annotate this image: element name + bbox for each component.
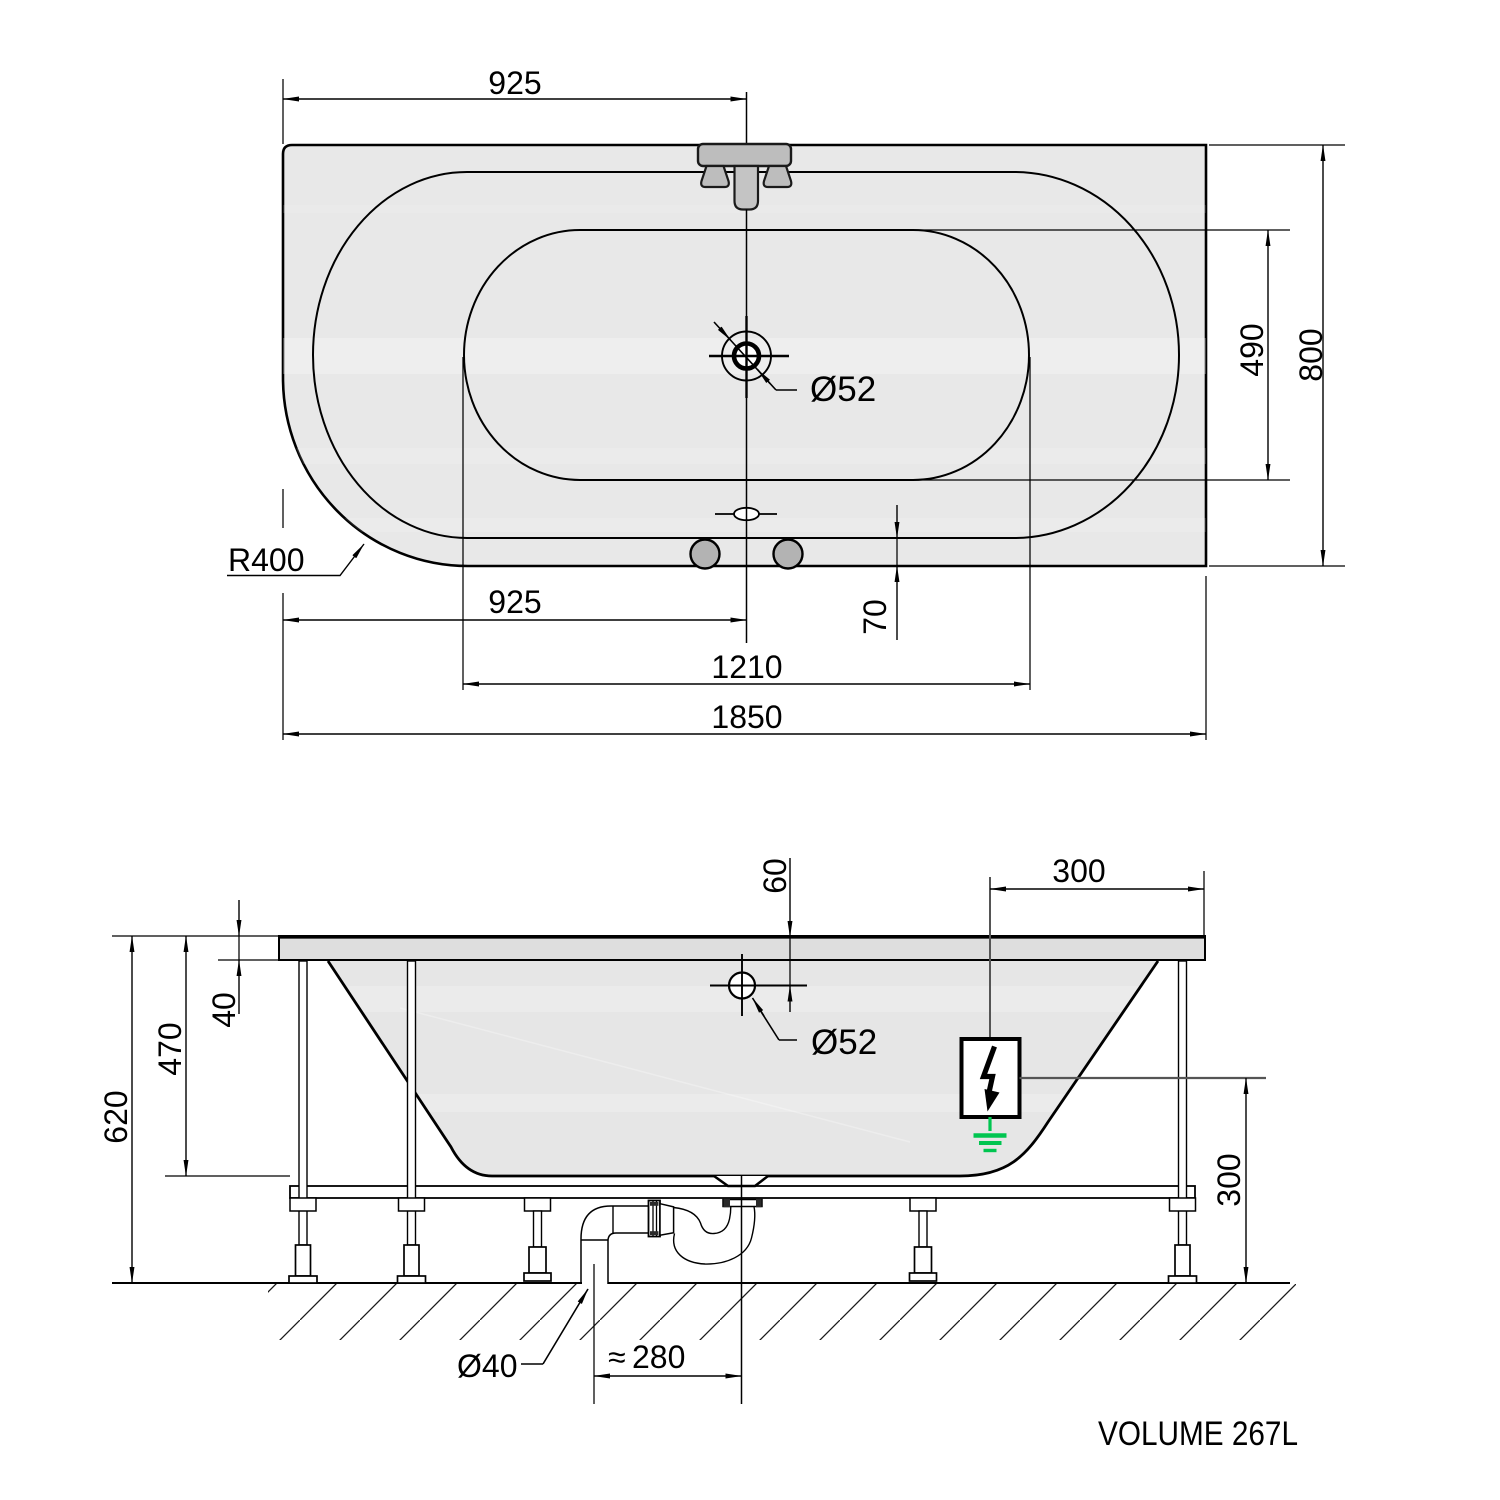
svg-text:1210: 1210 <box>711 649 782 685</box>
svg-text:925: 925 <box>488 584 541 620</box>
svg-text:300: 300 <box>1211 1153 1247 1206</box>
svg-text:60: 60 <box>757 858 793 894</box>
svg-text:VOLUME 267L: VOLUME 267L <box>1098 1415 1298 1453</box>
svg-text:70: 70 <box>857 599 893 635</box>
svg-text:40: 40 <box>206 992 242 1028</box>
svg-text:1850: 1850 <box>711 699 782 735</box>
svg-text:800: 800 <box>1293 328 1329 381</box>
svg-text:Ø52: Ø52 <box>811 1023 877 1062</box>
svg-text:R400: R400 <box>228 542 305 578</box>
svg-text:490: 490 <box>1234 323 1270 376</box>
svg-text:470: 470 <box>152 1022 188 1075</box>
svg-text:Ø52: Ø52 <box>810 370 876 409</box>
svg-text:≈ 280: ≈ 280 <box>608 1339 685 1375</box>
svg-text:620: 620 <box>98 1090 134 1143</box>
svg-text:925: 925 <box>488 65 541 101</box>
svg-text:Ø40: Ø40 <box>457 1348 517 1384</box>
svg-text:300: 300 <box>1052 853 1105 889</box>
